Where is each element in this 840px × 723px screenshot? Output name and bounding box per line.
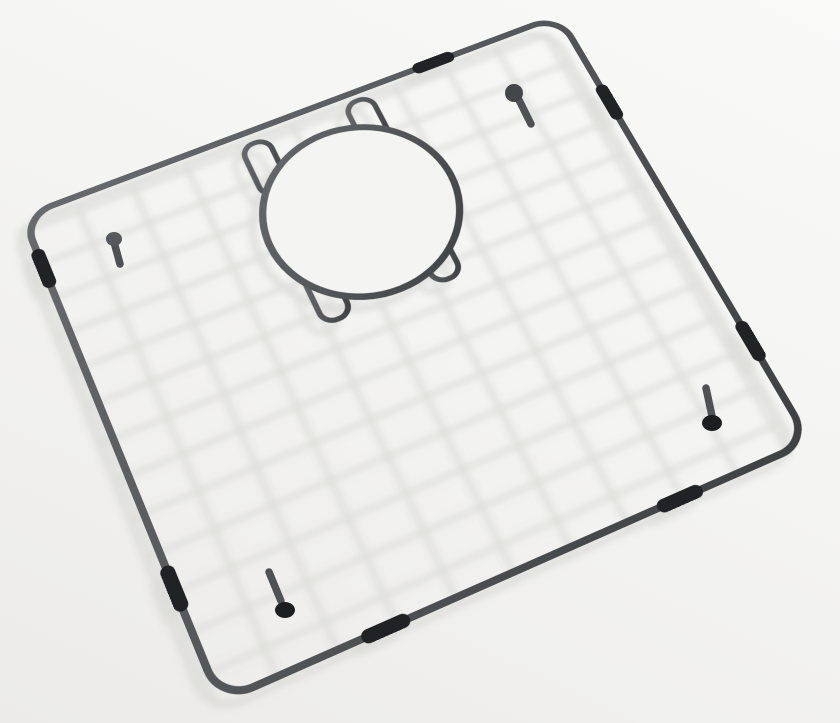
foot-bottom-left [269, 572, 295, 618]
foot-cap [275, 602, 295, 618]
product-photo [0, 0, 840, 723]
foot-top [505, 84, 531, 124]
foot-stem [518, 98, 531, 124]
foot-cap [702, 415, 722, 431]
grid-feet [0, 0, 840, 723]
foot-stem [269, 572, 281, 601]
foot-cap [505, 84, 523, 102]
foot-upper-left [106, 232, 122, 264]
foot-right [702, 388, 722, 431]
foot-stem [706, 388, 712, 416]
foot-cap [106, 232, 122, 246]
